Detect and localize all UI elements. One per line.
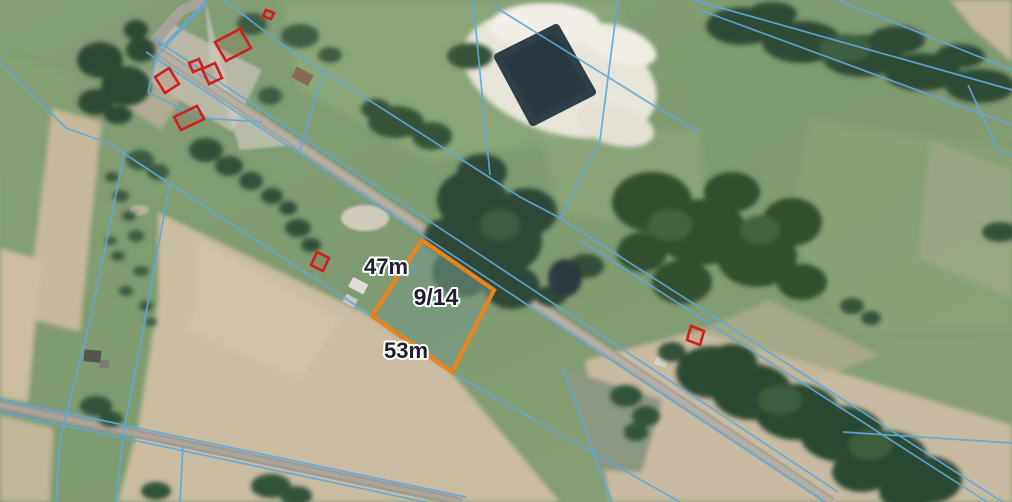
parcel-id-label: 9/14 [414, 284, 459, 310]
building-outline [687, 326, 704, 345]
map-canvas: 47m 9/14 53m [0, 0, 1012, 502]
side-dimension-label: 53m [384, 338, 428, 363]
front-dimension-label: 47m [364, 254, 408, 279]
building-outline [189, 59, 203, 72]
aerial-map[interactable]: 47m 9/14 53m [0, 0, 1012, 502]
building-outline [263, 10, 274, 19]
